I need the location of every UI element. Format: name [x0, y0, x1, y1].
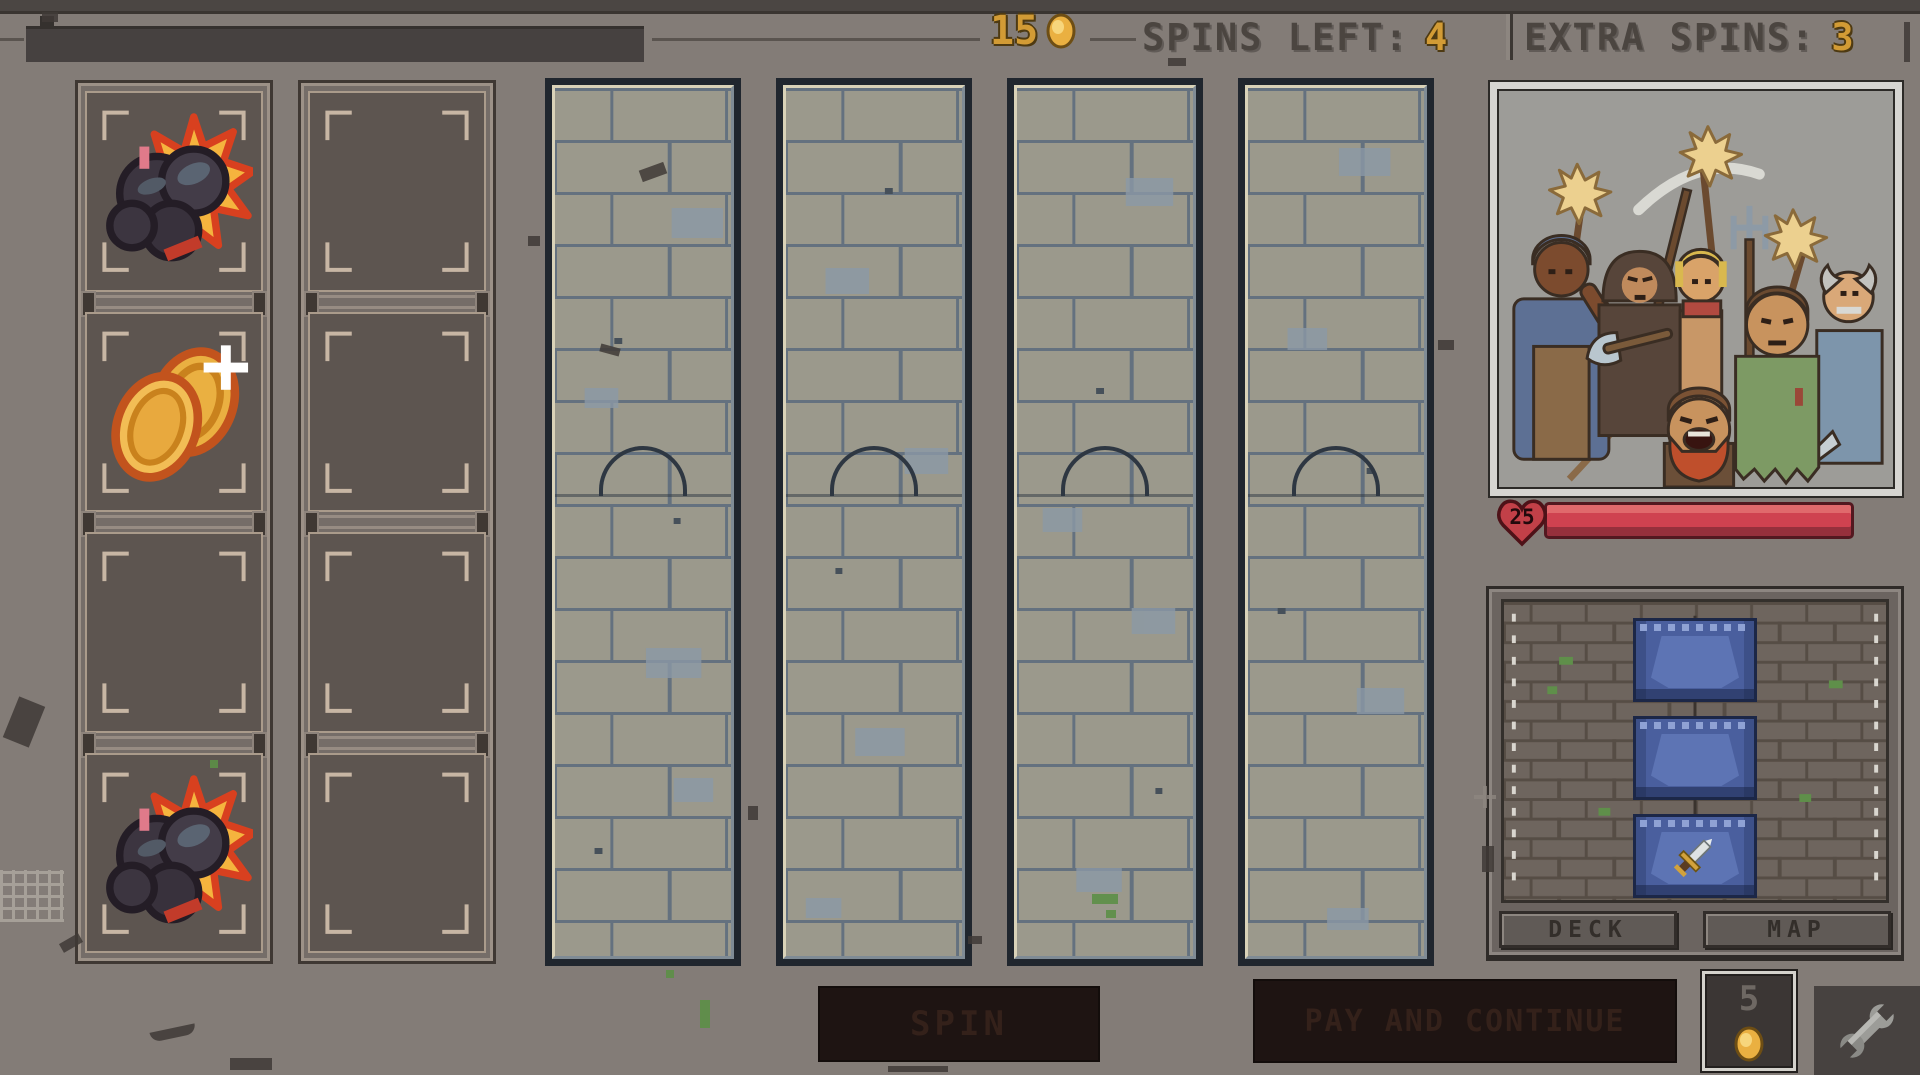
map-button-label: MAP [1767, 917, 1827, 943]
spins-left-counter: SPINS LEFT: 4 [1142, 16, 1447, 59]
header-rule [0, 38, 24, 41]
net-texture-mark [0, 870, 64, 922]
deck-card-2[interactable] [1633, 716, 1757, 800]
moss-fleck [666, 970, 674, 978]
inventory-slot-coins[interactable] [85, 312, 263, 513]
extra-spins-label: EXTRA SPINS: [1524, 16, 1815, 59]
deck-card-1[interactable] [1633, 618, 1757, 702]
moss-fleck [1092, 894, 1118, 904]
grime-mark [1438, 340, 1454, 350]
coin-counter: 15 [990, 8, 1077, 54]
deck-panel: DECK MAP [1486, 586, 1904, 958]
spin-button[interactable]: SPIN [818, 986, 1100, 1062]
slot-reel-1 [545, 78, 741, 966]
reel-brick-wall [1014, 85, 1196, 959]
bomb-icon [95, 774, 253, 932]
grime-mark [528, 236, 540, 246]
extra-spins-value: 3 [1831, 16, 1853, 59]
reel-door-base-line [1017, 494, 1193, 497]
brick-texture [555, 88, 731, 956]
slot-divider [86, 736, 262, 750]
bomb-icon [95, 112, 253, 270]
settings-button[interactable] [1814, 986, 1920, 1075]
deck-panel-wall [1501, 599, 1889, 903]
slot-divider [309, 295, 485, 309]
moss-fleck [210, 760, 218, 768]
spin-button-label: SPIN [910, 1004, 1008, 1044]
slot-corner-ornaments [87, 534, 261, 731]
enemy-hp-value: 25 [1498, 505, 1546, 529]
enemy-hp-bar [1544, 502, 1854, 539]
slot-reel-4 [1238, 78, 1434, 966]
wrench-icon [1832, 996, 1902, 1066]
grime-mark [1168, 58, 1186, 66]
sword-icon [1672, 833, 1718, 879]
slot-divider [309, 736, 485, 750]
cross-scratch-mark [1474, 786, 1496, 808]
brick-texture [1017, 88, 1193, 956]
grime-mark [748, 806, 758, 820]
header-divider [1506, 14, 1510, 60]
header-rule [1090, 38, 1136, 41]
inventory-slot-empty[interactable] [308, 91, 486, 292]
pay-continue-button-label: PAY AND CONTINUE [1305, 1004, 1626, 1039]
grime-mark [888, 1066, 948, 1072]
reel-brick-wall [1245, 85, 1427, 959]
header-rule [652, 38, 980, 41]
coins-icon [95, 333, 253, 491]
inventory-column-1 [75, 80, 273, 964]
game-screen: 15 SPINS LEFT: 4 EXTRA SPINS: 3 [0, 0, 1920, 1075]
inventory-slot-bomb[interactable] [85, 91, 263, 292]
grime-mark [42, 12, 58, 22]
slot-reel-3 [1007, 78, 1203, 966]
reel-door-base-line [1248, 494, 1424, 497]
reel-door-base-line [555, 494, 731, 497]
map-button[interactable]: MAP [1703, 911, 1891, 948]
deck-button-label: DECK [1548, 917, 1627, 943]
continue-cost-box: 5 [1702, 971, 1796, 1071]
inventory-slot-bomb[interactable] [85, 753, 263, 954]
inventory-column-2 [298, 80, 496, 964]
coin-icon [1732, 1026, 1766, 1062]
angry-mob-icon [1499, 91, 1893, 487]
inventory-slot-empty[interactable] [85, 532, 263, 733]
coin-icon [1045, 13, 1077, 49]
reel-brick-wall [783, 85, 965, 959]
slot-corner-ornaments [310, 534, 484, 731]
spins-left-value: 4 [1425, 16, 1447, 59]
deck-button[interactable]: DECK [1499, 911, 1677, 948]
grime-mark [1482, 846, 1494, 872]
inventory-slot-empty[interactable] [308, 312, 486, 513]
top-progress-bar [26, 26, 644, 62]
reel-door-base-line [786, 494, 962, 497]
top-band [0, 0, 1920, 14]
slot-corner-ornaments [310, 755, 484, 952]
pay-continue-button[interactable]: PAY AND CONTINUE [1253, 979, 1677, 1063]
enemy-portrait [1490, 82, 1902, 496]
brick-texture [1248, 88, 1424, 956]
moss-fleck [700, 1000, 710, 1028]
inventory-slot-empty[interactable] [308, 532, 486, 733]
grime-mark [3, 696, 45, 747]
grime-mark [149, 1023, 196, 1042]
continue-cost-value: 5 [1739, 982, 1759, 1016]
inventory-slot-empty[interactable] [308, 753, 486, 954]
grime-mark [968, 936, 982, 944]
slot-divider [86, 515, 262, 529]
spins-left-label: SPINS LEFT: [1142, 16, 1409, 59]
extra-spins-counter: EXTRA SPINS: 3 [1524, 16, 1854, 59]
slot-divider [86, 295, 262, 309]
moss-fleck [1106, 910, 1116, 918]
deck-card-3[interactable] [1633, 814, 1757, 898]
coin-count-value: 15 [990, 8, 1038, 54]
slot-corner-ornaments [310, 93, 484, 290]
slot-divider [309, 515, 485, 529]
brick-texture [786, 88, 962, 956]
slot-corner-ornaments [310, 314, 484, 511]
grime-mark [230, 1058, 272, 1070]
grime-mark [1904, 22, 1910, 62]
reel-brick-wall [552, 85, 734, 959]
slot-reel-2 [776, 78, 972, 966]
